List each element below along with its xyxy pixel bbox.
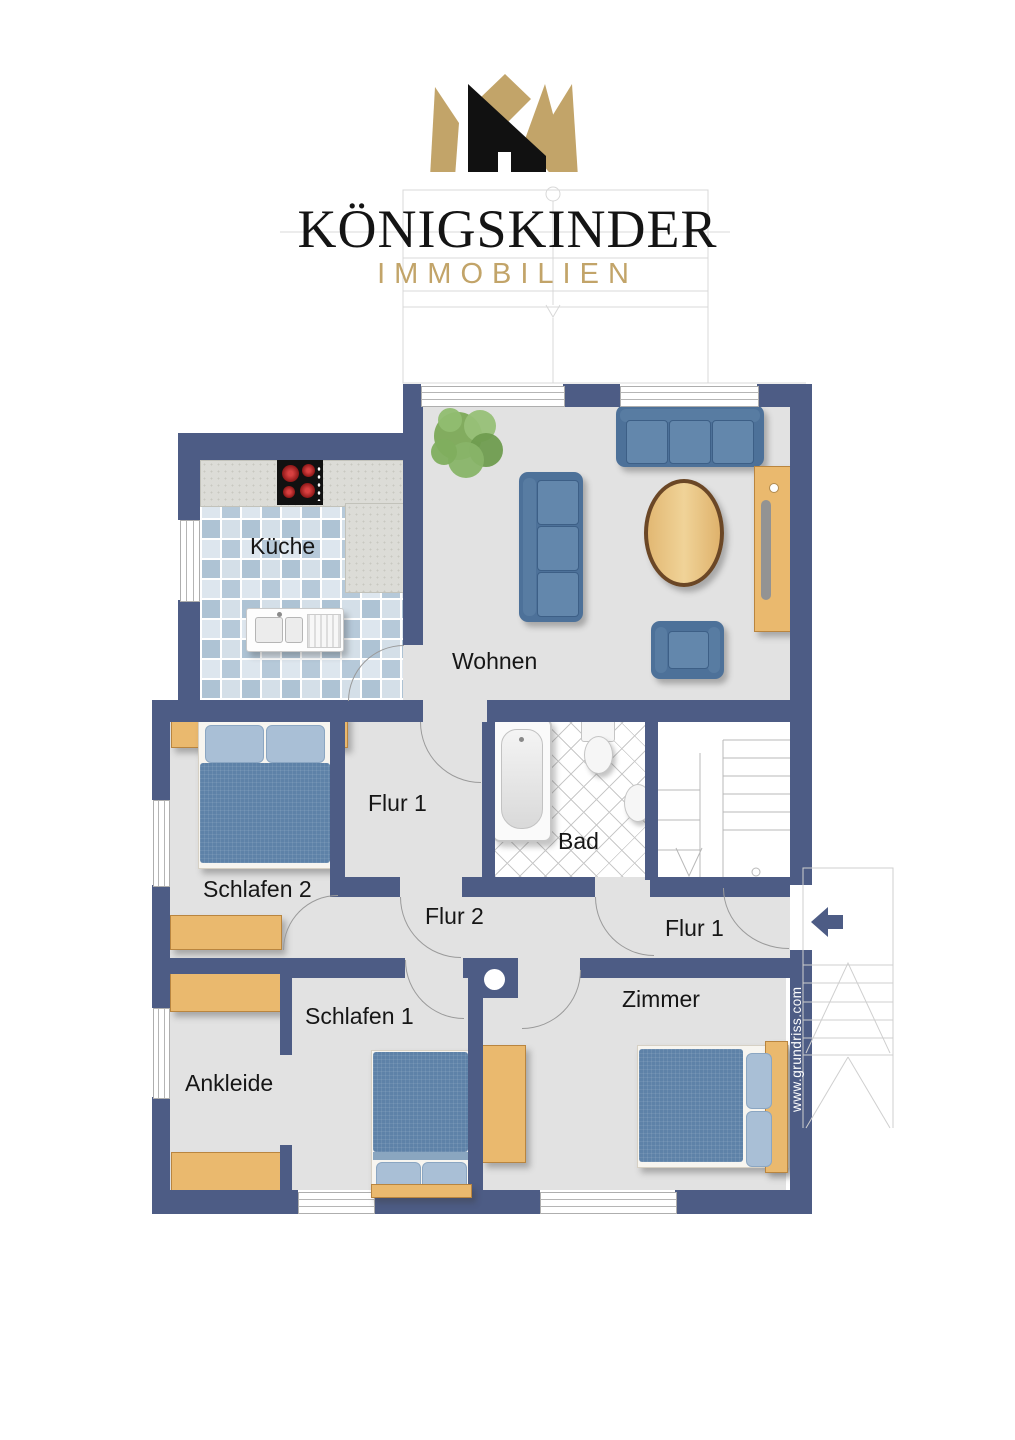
bed-headboard (371, 1184, 472, 1198)
floor-threshold (400, 877, 462, 897)
armchair-arm (655, 627, 667, 673)
sideboard (754, 466, 792, 632)
stairs-entrance (803, 868, 893, 1128)
room-label-bad: Bad (558, 828, 599, 855)
burner-icon (302, 464, 315, 477)
wall (152, 1190, 298, 1214)
window (298, 1192, 375, 1214)
wall (645, 722, 658, 880)
bathtub-drain-icon (519, 737, 524, 742)
sink-basin (255, 617, 283, 643)
burner-icon (300, 483, 315, 498)
sofa-cushion (537, 572, 579, 617)
wall (178, 433, 200, 520)
floorplan-page: KÖNIGSKINDER IMMOBILIEN (0, 0, 1015, 1440)
entrance-arrow-icon (811, 907, 843, 937)
wall (403, 384, 421, 407)
kitchen-counter (345, 503, 405, 593)
bathtub (492, 718, 552, 842)
sink-faucet-icon (277, 612, 282, 617)
wall (152, 885, 170, 1008)
sofa-back (523, 478, 536, 616)
armchair-cushion (668, 631, 709, 669)
room-label-schlafen2: Schlafen 2 (203, 876, 312, 903)
wall (468, 970, 483, 1197)
brand-title: KÖNIGSKINDER (0, 198, 1015, 260)
wall (403, 407, 423, 645)
sink-basin (285, 617, 303, 643)
sofa-cushion (669, 420, 711, 464)
wall (330, 877, 400, 897)
coffee-table-oval (644, 479, 724, 587)
floor-threshold (595, 877, 650, 897)
armchair (651, 621, 724, 679)
burner-icon (283, 486, 295, 498)
wall (152, 700, 423, 722)
armchair-arm (708, 627, 720, 673)
room-label-schlafen1: Schlafen 1 (305, 1003, 414, 1030)
watermark: www.grundriss.com (789, 986, 804, 1112)
wall (152, 722, 170, 800)
bed-pillow (746, 1053, 772, 1109)
wall (675, 1190, 812, 1214)
chimney-flue-icon (484, 969, 505, 990)
bed-duvet (373, 1052, 468, 1152)
window (153, 1008, 170, 1099)
wardrobe (170, 915, 282, 950)
wall (152, 958, 292, 974)
room-label-wohnen: Wohnen (452, 648, 537, 675)
wall (563, 384, 620, 407)
wall (178, 600, 200, 700)
sofa-three-seat (519, 472, 583, 622)
floor-threshold (280, 1055, 292, 1145)
window (153, 800, 170, 887)
toilet-bowl (584, 736, 613, 774)
bed-duvet (200, 763, 330, 863)
wall (487, 700, 812, 722)
plant-icon (428, 402, 506, 482)
sideboard-knob-icon (769, 483, 779, 493)
window (540, 1192, 677, 1214)
room-label-ankleide: Ankleide (185, 1070, 273, 1097)
wall (462, 877, 595, 897)
wall (330, 722, 345, 890)
sofa-three-seat (616, 405, 764, 467)
burner-icon (282, 465, 299, 482)
bed-duvet (639, 1049, 743, 1162)
floor-threshold (423, 700, 487, 722)
sofa-cushion (537, 480, 579, 525)
room-label-flur2: Flur 2 (425, 903, 484, 930)
sideboard-slot (761, 500, 771, 600)
wall (482, 722, 495, 897)
wall (580, 958, 790, 978)
bed-pillow (746, 1111, 772, 1167)
sofa-cushion (626, 420, 668, 464)
room-label-flur1-lower: Flur 1 (665, 915, 724, 942)
wall (280, 1145, 292, 1197)
window (421, 386, 565, 407)
bed-pillow (266, 725, 325, 763)
bathtub-basin (501, 729, 543, 829)
bed-pillow (205, 725, 264, 763)
window (620, 386, 759, 407)
floor-threshold (403, 645, 423, 700)
cooktop (277, 460, 323, 505)
wall (283, 958, 405, 978)
bed-sheet-band (373, 1152, 468, 1160)
room-label-kueche: Küche (250, 533, 315, 560)
brand-subtitle: IMMOBILIEN (0, 258, 1015, 291)
crown-logo-icon (428, 72, 578, 172)
sofa-cushion (712, 420, 754, 464)
wall (178, 433, 423, 460)
wall (280, 958, 292, 1055)
sofa-cushion (537, 526, 579, 571)
room-label-flur1-upper: Flur 1 (368, 790, 427, 817)
wall (790, 384, 812, 885)
kitchen-sink (246, 608, 344, 652)
sink-drainer (307, 614, 341, 648)
desk (482, 1045, 526, 1163)
room-label-zimmer: Zimmer (622, 986, 700, 1013)
window (180, 520, 200, 602)
floor-stairwell (658, 715, 790, 877)
cooktop-knobs (316, 465, 322, 501)
